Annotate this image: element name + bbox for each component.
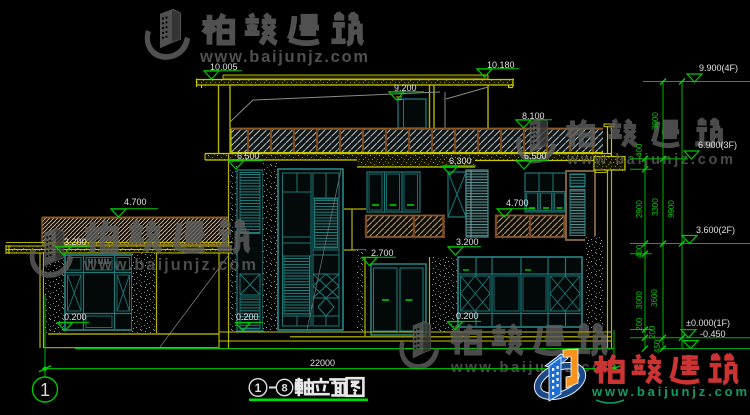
svg-text:2.700: 2.700 <box>371 248 394 258</box>
svg-text:400: 400 <box>635 244 644 258</box>
svg-text:3.600(2F): 3.600(2F) <box>696 225 735 235</box>
svg-text:6.500: 6.500 <box>524 151 547 161</box>
svg-text:6.300: 6.300 <box>449 156 472 166</box>
svg-text:9900: 9900 <box>667 200 676 218</box>
svg-text:3300: 3300 <box>651 198 660 216</box>
svg-text:4.700: 4.700 <box>506 198 529 208</box>
svg-text:3.200: 3.200 <box>456 237 479 247</box>
svg-text:3.200: 3.200 <box>64 237 87 247</box>
svg-text:6.900(3F): 6.900(3F) <box>698 140 737 150</box>
svg-text:200: 200 <box>635 317 644 331</box>
svg-text:8: 8 <box>281 383 287 395</box>
svg-text:3000: 3000 <box>651 112 660 130</box>
svg-text:-0.450: -0.450 <box>700 329 726 339</box>
svg-text:3600: 3600 <box>650 289 659 307</box>
svg-text:6.500: 6.500 <box>237 151 260 161</box>
svg-text:1: 1 <box>255 381 262 395</box>
svg-text:22000: 22000 <box>310 358 335 368</box>
svg-text:1: 1 <box>40 380 50 400</box>
svg-text:450: 450 <box>653 339 662 353</box>
svg-text:0.200: 0.200 <box>236 312 259 322</box>
svg-text:200: 200 <box>648 325 657 339</box>
svg-text:2900: 2900 <box>635 200 644 218</box>
svg-text:4.700: 4.700 <box>124 197 147 207</box>
svg-text:0.200: 0.200 <box>64 312 87 322</box>
svg-text:3000: 3000 <box>635 291 644 309</box>
svg-text:0.200: 0.200 <box>456 311 479 321</box>
svg-text:±0.000(1F): ±0.000(1F) <box>686 318 730 328</box>
svg-text:9.900(4F): 9.900(4F) <box>699 63 738 73</box>
svg-text:400: 400 <box>635 143 644 157</box>
